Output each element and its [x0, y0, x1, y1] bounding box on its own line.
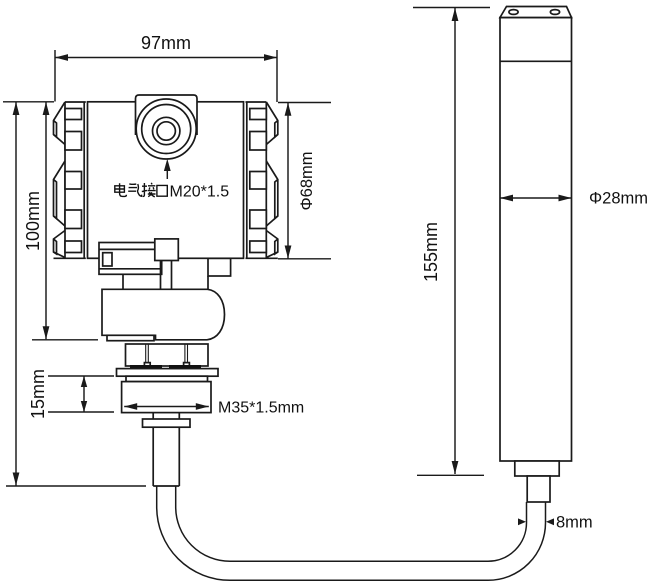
- svg-text:155mm: 155mm: [421, 222, 441, 282]
- svg-text:100mm: 100mm: [23, 191, 43, 251]
- svg-text:97mm: 97mm: [141, 33, 191, 53]
- svg-text:M20*1.5: M20*1.5: [170, 184, 230, 201]
- svg-text:8mm: 8mm: [556, 514, 593, 532]
- svg-text:15mm: 15mm: [28, 369, 48, 419]
- svg-text:Φ28mm: Φ28mm: [589, 190, 648, 208]
- svg-text:Φ68mm: Φ68mm: [298, 151, 316, 210]
- svg-text:M35*1.5mm: M35*1.5mm: [218, 400, 304, 417]
